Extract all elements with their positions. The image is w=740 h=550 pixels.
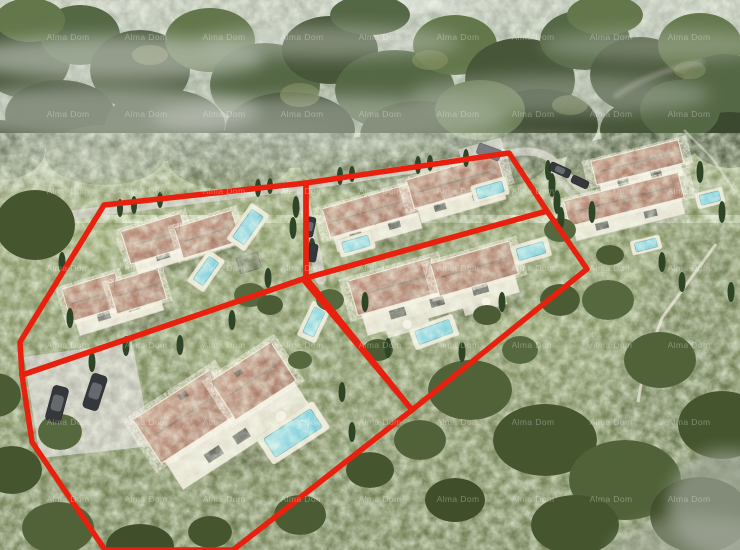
watermark-text: Alma Dom [203,186,246,196]
watermark-text: Alma Dom [359,263,402,273]
watermark-text: Alma Dom [590,494,633,504]
watermark-text: Alma Dom [359,109,402,119]
watermark-text: Alma Dom [590,417,633,427]
watermark-text: Alma Dom [203,340,246,350]
watermark-text: Alma Dom [512,186,555,196]
watermark-text: Alma Dom [668,263,711,273]
watermark-text: Alma Dom [47,32,90,42]
watermark-text: Alma Dom [668,494,711,504]
watermark-text: Alma Dom [125,263,168,273]
watermark-text: Alma Dom [668,109,711,119]
watermark-text: Alma Dom [47,263,90,273]
aerial-render: Alma DomAlma DomAlma DomAlma DomAlma Dom… [0,0,740,550]
watermark-text: Alma Dom [203,109,246,119]
watermark-text: Alma Dom [125,340,168,350]
watermark-text: Alma Dom [590,340,633,350]
watermark-text: Alma Dom [668,417,711,427]
watermark-text: Alma Dom [359,186,402,196]
watermark-text: Alma Dom [359,32,402,42]
watermark-text: Alma Dom [437,186,480,196]
watermark-text: Alma Dom [203,417,246,427]
watermark-text: Alma Dom [512,494,555,504]
watermark-text: Alma Dom [125,417,168,427]
watermark-text: Alma Dom [125,186,168,196]
watermark-text: Alma Dom [281,109,324,119]
watermark-text: Alma Dom [668,340,711,350]
watermark-text: Alma Dom [281,263,324,273]
watermark-text: Alma Dom [437,109,480,119]
watermark-text: Alma Dom [281,340,324,350]
watermark-text: Alma Dom [359,494,402,504]
watermark-text: Alma Dom [437,263,480,273]
watermark-text: Alma Dom [512,32,555,42]
watermark-text: Alma Dom [203,263,246,273]
watermark-text: Alma Dom [590,263,633,273]
watermark-text: Alma Dom [125,109,168,119]
watermark-text: Alma Dom [281,494,324,504]
watermark-text: Alma Dom [359,340,402,350]
watermark-text: Alma Dom [203,494,246,504]
watermark-text: Alma Dom [125,32,168,42]
watermark-text: Alma Dom [437,494,480,504]
watermark-text: Alma Dom [668,186,711,196]
watermark-text: Alma Dom [590,186,633,196]
watermark-text: Alma Dom [437,32,480,42]
watermark-text: Alma Dom [203,32,246,42]
watermark-text: Alma Dom [668,32,711,42]
watermark-text: Alma Dom [125,494,168,504]
watermark-text: Alma Dom [47,109,90,119]
watermark-text: Alma Dom [512,263,555,273]
watermark-text: Alma Dom [437,417,480,427]
watermark-text: Alma Dom [281,417,324,427]
watermark-text: Alma Dom [512,109,555,119]
watermark-text: Alma Dom [281,186,324,196]
watermark-text: Alma Dom [47,494,90,504]
villa-development-scene: Alma DomAlma DomAlma DomAlma DomAlma Dom… [0,0,740,550]
watermark-text: Alma Dom [512,340,555,350]
watermark-text: Alma Dom [47,340,90,350]
watermark-text: Alma Dom [281,32,324,42]
watermark-text: Alma Dom [47,417,90,427]
watermark-text: Alma Dom [437,340,480,350]
watermark-text: Alma Dom [359,417,402,427]
watermark-text: Alma Dom [590,32,633,42]
watermark-text: Alma Dom [512,417,555,427]
watermark-text: Alma Dom [590,109,633,119]
watermark-text: Alma Dom [47,186,90,196]
